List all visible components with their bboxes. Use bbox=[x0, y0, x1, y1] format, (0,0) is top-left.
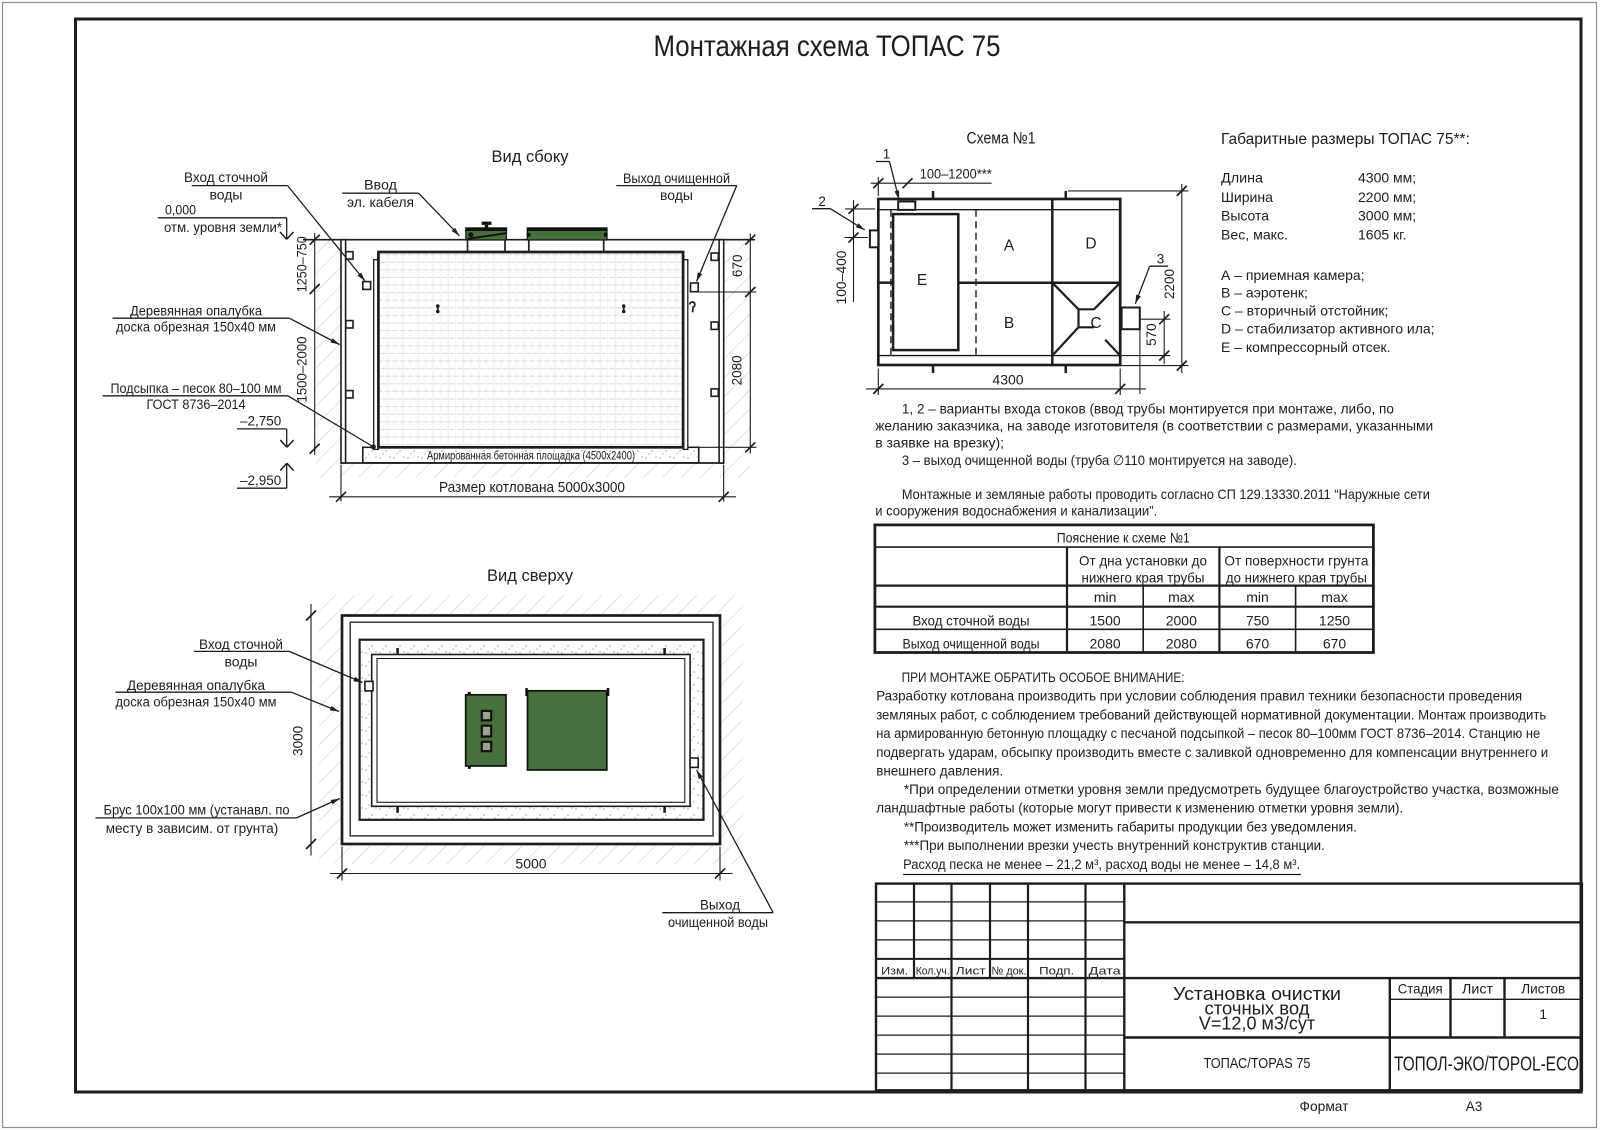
svg-text:min: min bbox=[1094, 589, 1117, 605]
svg-text:*При определении отметки уровн: *При определении отметки уровня земли пр… bbox=[904, 781, 1559, 797]
svg-text:1, 2 – варианты входа стоков: 1, 2 – варианты входа стоков (ввод трубы… bbox=[902, 401, 1394, 417]
svg-text:Брус 100х100 мм (устанавл. по: Брус 100х100 мм (устанавл. по bbox=[104, 802, 290, 817]
svg-text:№ док.: № док. bbox=[992, 966, 1027, 978]
svg-text:Изм.: Изм. bbox=[881, 966, 908, 978]
svg-text:670: 670 bbox=[1323, 635, 1347, 651]
svg-text:в заявке на врезку);: в заявке на врезку); bbox=[875, 435, 1004, 451]
svg-text:E: E bbox=[917, 272, 927, 289]
svg-text:A: A bbox=[1004, 238, 1015, 255]
svg-text:подвергать ударам, обсыпку про: подвергать ударам, обсыпку производить в… bbox=[876, 744, 1548, 760]
svg-text:ТОПОЛ-ЭКО/TOPOL-ECO: ТОПОЛ-ЭКО/TOPOL-ECO bbox=[1394, 1054, 1579, 1076]
svg-text:100–400: 100–400 bbox=[834, 251, 849, 305]
svg-text:От поверхности грунта: От поверхности грунта bbox=[1224, 553, 1368, 569]
svg-text:5000: 5000 bbox=[515, 856, 546, 872]
svg-text:Деревянная опалубка: Деревянная опалубка bbox=[130, 303, 262, 318]
svg-text:3 – выход очищенной воды (труб: 3 – выход очищенной воды (труба ∅110 мон… bbox=[902, 452, 1297, 468]
svg-text:670: 670 bbox=[730, 255, 745, 278]
svg-text:4300: 4300 bbox=[992, 372, 1023, 388]
svg-text:ландшафтные работы (которые мо: ландшафтные работы (которые могут привес… bbox=[876, 800, 1403, 816]
svg-text:Кол.уч.: Кол.уч. bbox=[916, 966, 950, 978]
svg-text:воды: воды bbox=[660, 188, 693, 203]
svg-text:А3: А3 bbox=[1466, 1099, 1483, 1114]
svg-text:570: 570 bbox=[1144, 323, 1159, 346]
svg-text:ПРИ МОНТАЖЕ ОБРАТИТЬ ОСОБОЕ ВН: ПРИ МОНТАЖЕ ОБРАТИТЬ ОСОБОЕ ВНИМАНИЕ: bbox=[902, 669, 1185, 685]
svg-text:Монтажная схема ТОПАС 75: Монтажная схема ТОПАС 75 bbox=[654, 30, 1001, 63]
svg-text:–2,750: –2,750 bbox=[240, 413, 281, 428]
svg-text:Листов: Листов bbox=[1521, 981, 1565, 997]
svg-text:доска обрезная 150х40 мм: доска обрезная 150х40 мм bbox=[116, 320, 276, 335]
svg-text:Подсыпка – песок 80–100 мм: Подсыпка – песок 80–100 мм bbox=[111, 381, 282, 396]
svg-text:2000: 2000 bbox=[1166, 612, 1197, 628]
svg-text:1500–2000: 1500–2000 bbox=[295, 337, 310, 403]
svg-text:–2,950: –2,950 bbox=[240, 473, 281, 488]
svg-text:Е – компрессорный отсек.: Е – компрессорный отсек. bbox=[1221, 339, 1391, 355]
svg-text:Стадия: Стадия bbox=[1398, 981, 1443, 997]
svg-text:Лист: Лист bbox=[956, 966, 986, 978]
svg-text:ТОПАС/TOPAS 75: ТОПАС/TOPAS 75 bbox=[1204, 1056, 1311, 1072]
svg-text:1250–750: 1250–750 bbox=[295, 236, 310, 292]
svg-text:желанию заказчика, на заводе и: желанию заказчика, на заводе изготовител… bbox=[875, 417, 1433, 433]
svg-text:земляных работ, с соблюдением: земляных работ, с соблюдением требований… bbox=[876, 706, 1546, 722]
svg-text:С – вторичный отстойник;: С – вторичный отстойник; bbox=[1221, 302, 1388, 318]
svg-text:670: 670 bbox=[1246, 635, 1270, 651]
svg-text:Выход: Выход bbox=[700, 898, 740, 913]
svg-text:очищенной воды: очищенной воды bbox=[668, 915, 768, 930]
svg-text:нижнего края трубы: нижнего края трубы bbox=[1082, 570, 1205, 586]
svg-text:Расход песка не менее – 21,2 м: Расход песка не менее – 21,2 м³, расход … bbox=[903, 856, 1300, 872]
svg-text:750: 750 bbox=[1246, 612, 1270, 628]
svg-text:Габаритные размеры ТОПАС 75**:: Габаритные размеры ТОПАС 75**: bbox=[1221, 131, 1470, 148]
svg-text:до нижнего края трубы: до нижнего края трубы bbox=[1226, 570, 1367, 586]
svg-text:***При выполнении врезки учест: ***При выполнении врезки учесть внутренн… bbox=[904, 837, 1325, 853]
svg-text:3000: 3000 bbox=[291, 726, 306, 756]
svg-text:B: B bbox=[1004, 315, 1014, 332]
svg-text:внешнего давления.: внешнего давления. bbox=[876, 762, 1003, 778]
svg-text:1: 1 bbox=[1539, 1006, 1547, 1022]
svg-text:А – приемная камера;: А – приемная камера; bbox=[1221, 267, 1365, 283]
svg-text:Пояснение к схеме №1: Пояснение к схеме №1 bbox=[1057, 530, 1190, 546]
svg-text:Вход сточной: Вход сточной bbox=[184, 170, 268, 185]
svg-text:2080: 2080 bbox=[1166, 635, 1197, 651]
svg-text:min: min bbox=[1246, 589, 1269, 605]
svg-text:Выход очищенной воды: Выход очищенной воды bbox=[903, 635, 1040, 651]
svg-text:2200: 2200 bbox=[1162, 269, 1177, 299]
svg-text:отм. уровня земли*: отм. уровня земли* bbox=[164, 220, 283, 235]
svg-text:Выход очищенной: Выход очищенной bbox=[623, 171, 730, 186]
svg-text:max: max bbox=[1168, 589, 1194, 605]
svg-text:воды: воды bbox=[210, 188, 243, 203]
svg-text:Вход сточной воды: Вход сточной воды bbox=[913, 612, 1030, 628]
svg-text:2080: 2080 bbox=[730, 355, 745, 385]
svg-text:эл. кабеля: эл. кабеля bbox=[347, 195, 414, 210]
svg-text:Армированная бетонная площадка: Армированная бетонная площадка (4500х240… bbox=[427, 451, 635, 463]
svg-text:Подп.: Подп. bbox=[1039, 966, 1074, 978]
svg-text:В – аэротенк;: В – аэротенк; bbox=[1221, 285, 1308, 301]
svg-text:Схема №1: Схема №1 bbox=[967, 130, 1036, 148]
svg-text:D – стабилизатор активного ила: D – стабилизатор активного ила; bbox=[1221, 320, 1435, 336]
svg-text:1250: 1250 bbox=[1319, 612, 1350, 628]
svg-text:От дна установки до: От дна установки до bbox=[1079, 553, 1207, 569]
svg-text:Размер котлована 5000х3000: Размер котлована 5000х3000 bbox=[439, 480, 625, 496]
svg-text:0,000: 0,000 bbox=[165, 203, 196, 218]
svg-text:Вид сверху: Вид сверху bbox=[487, 567, 574, 585]
svg-text:Лист: Лист bbox=[1462, 981, 1494, 997]
svg-text:C: C bbox=[1090, 315, 1101, 332]
svg-text:**Производитель может изменить: **Производитель может изменить габариты … bbox=[904, 818, 1357, 834]
svg-text:2: 2 bbox=[818, 194, 826, 209]
svg-text:ГОСТ 8736–2014: ГОСТ 8736–2014 bbox=[147, 397, 246, 412]
svg-text:Деревянная опалубка: Деревянная опалубка bbox=[127, 678, 265, 693]
svg-text:месту в зависим. от грунта): месту в зависим. от грунта) bbox=[106, 821, 278, 836]
svg-text:Вход сточной: Вход сточной bbox=[199, 637, 283, 652]
svg-text:Формат: Формат bbox=[1300, 1099, 1349, 1114]
svg-text:2080: 2080 bbox=[1090, 635, 1121, 651]
svg-text:Разработку котлована производи: Разработку котлована производить при усл… bbox=[876, 688, 1522, 704]
svg-text:3: 3 bbox=[1157, 252, 1165, 267]
svg-text:D: D bbox=[1085, 236, 1096, 253]
svg-text:Монтажные и земляные работы пр: Монтажные и земляные работы проводить со… bbox=[902, 486, 1430, 502]
svg-text:100–1200***: 100–1200*** bbox=[920, 167, 993, 182]
svg-text:V=12,0 м3/сут: V=12,0 м3/сут bbox=[1199, 1014, 1315, 1034]
svg-text:на армированную бетонную площа: на армированную бетонную площадку с песч… bbox=[876, 725, 1540, 741]
svg-text:Ввод: Ввод bbox=[364, 178, 397, 193]
svg-text:max: max bbox=[1321, 589, 1347, 605]
svg-text:и сооружения водоснабжения и к: и сооружения водоснабжения и канализации… bbox=[875, 503, 1157, 519]
svg-text:Дата: Дата bbox=[1089, 966, 1122, 978]
svg-text:1500: 1500 bbox=[1090, 612, 1121, 628]
svg-text:1: 1 bbox=[883, 147, 891, 162]
svg-text:доска обрезная 150х40 мм: доска обрезная 150х40 мм bbox=[116, 695, 277, 710]
svg-text:воды: воды bbox=[225, 654, 258, 669]
svg-text:Вид сбоку: Вид сбоку bbox=[492, 148, 570, 166]
